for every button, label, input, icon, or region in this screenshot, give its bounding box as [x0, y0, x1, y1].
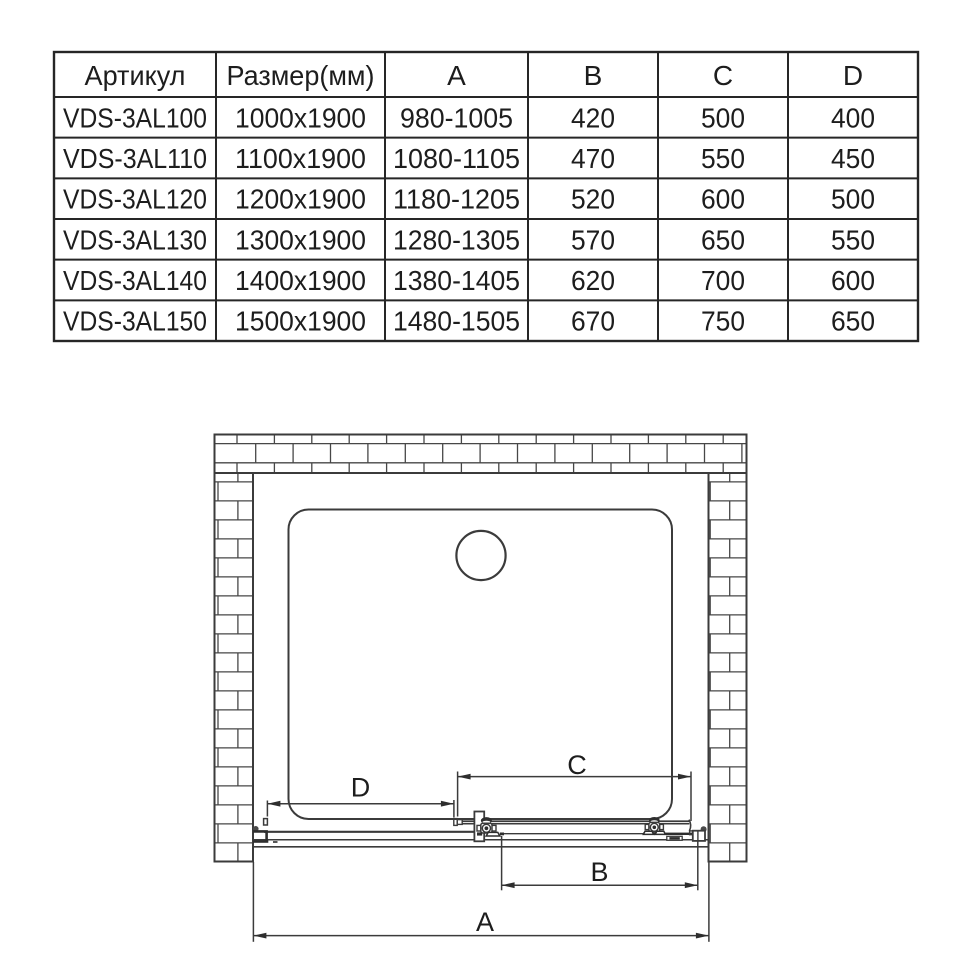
svg-text:1100x1900: 1100x1900: [235, 143, 366, 174]
svg-text:1480-1505: 1480-1505: [393, 306, 520, 337]
svg-text:600: 600: [701, 184, 745, 215]
svg-text:VDS-3AL140: VDS-3AL140: [63, 265, 207, 296]
svg-text:VDS-3AL120: VDS-3AL120: [63, 184, 207, 215]
svg-text:520: 520: [571, 184, 615, 215]
svg-text:500: 500: [831, 184, 875, 215]
svg-text:500: 500: [701, 102, 745, 133]
svg-text:A: A: [476, 907, 494, 937]
svg-text:C: C: [713, 60, 733, 91]
svg-text:700: 700: [701, 265, 745, 296]
svg-text:Размер(мм): Размер(мм): [227, 60, 375, 91]
svg-text:1500x1900: 1500x1900: [235, 306, 366, 337]
svg-text:750: 750: [701, 306, 745, 337]
svg-text:B: B: [584, 60, 603, 91]
svg-text:C: C: [567, 750, 587, 780]
svg-text:550: 550: [831, 224, 875, 255]
svg-text:650: 650: [701, 224, 745, 255]
svg-text:980-1005: 980-1005: [400, 102, 513, 133]
svg-text:550: 550: [701, 143, 745, 174]
svg-text:A: A: [447, 60, 466, 91]
svg-text:650: 650: [831, 306, 875, 337]
svg-text:1400x1900: 1400x1900: [235, 265, 366, 296]
svg-text:450: 450: [831, 143, 875, 174]
svg-text:1280-1305: 1280-1305: [393, 224, 520, 255]
svg-text:670: 670: [571, 306, 615, 337]
svg-text:1200x1900: 1200x1900: [235, 184, 366, 215]
svg-text:420: 420: [571, 102, 615, 133]
svg-text:D: D: [351, 773, 371, 803]
svg-text:1080-1105: 1080-1105: [393, 143, 520, 174]
svg-text:VDS-3AL100: VDS-3AL100: [63, 102, 207, 133]
svg-text:620: 620: [571, 265, 615, 296]
svg-text:VDS-3AL130: VDS-3AL130: [63, 224, 207, 255]
svg-text:VDS-3AL110: VDS-3AL110: [63, 143, 207, 174]
svg-text:470: 470: [571, 143, 615, 174]
svg-text:1380-1405: 1380-1405: [393, 265, 520, 296]
svg-text:VDS-3AL150: VDS-3AL150: [63, 306, 207, 337]
svg-text:B: B: [590, 857, 608, 887]
svg-text:Артикул: Артикул: [85, 60, 186, 91]
svg-text:570: 570: [571, 224, 615, 255]
svg-text:D: D: [843, 60, 863, 91]
svg-text:600: 600: [831, 265, 875, 296]
svg-text:1000x1900: 1000x1900: [235, 102, 366, 133]
svg-text:400: 400: [831, 102, 875, 133]
svg-text:1300x1900: 1300x1900: [235, 224, 366, 255]
svg-text:1180-1205: 1180-1205: [393, 184, 520, 215]
